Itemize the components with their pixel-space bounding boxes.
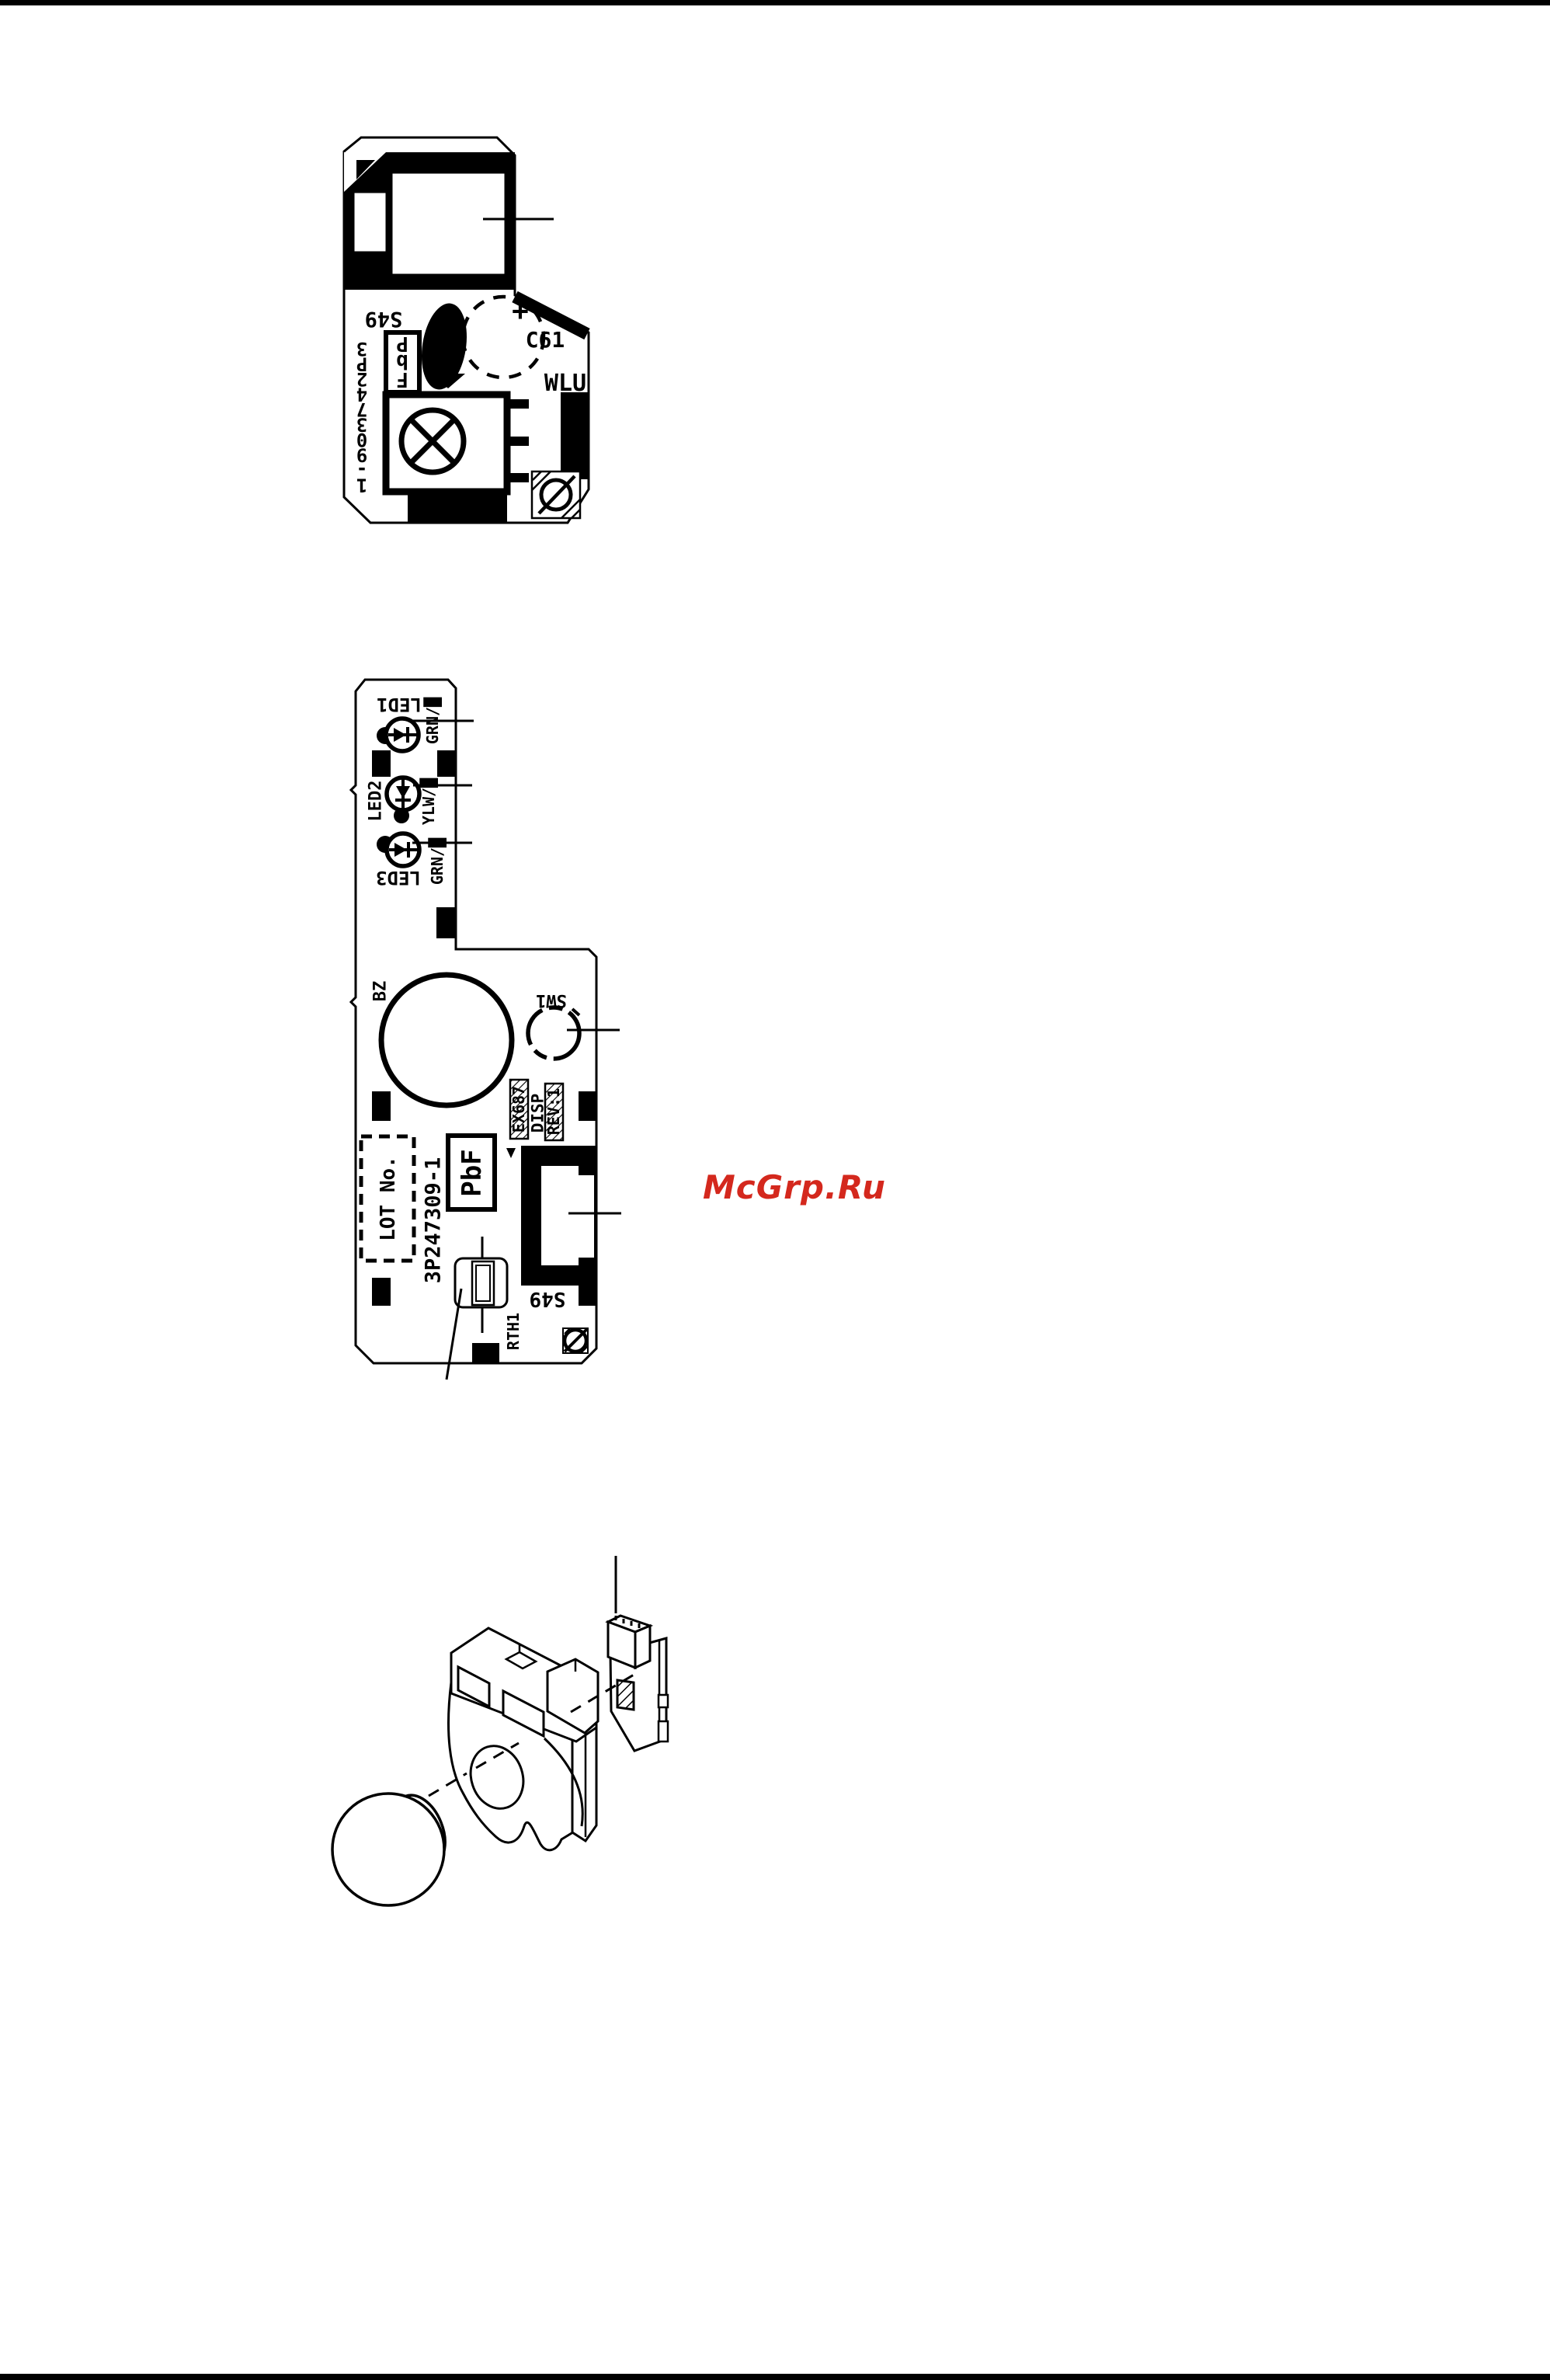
button-knob	[332, 1787, 455, 1905]
label-led3-color: GRN/█	[428, 837, 447, 885]
copper-pour-right	[561, 392, 589, 479]
label-s49: S49	[530, 1287, 566, 1310]
connector-s49	[523, 1147, 596, 1284]
top-edge-bar	[0, 0, 1550, 5]
label-pbf: PbF	[396, 332, 408, 391]
watermark: McGrp.Ru	[703, 1168, 886, 1207]
hatched-pad	[617, 1680, 634, 1710]
label-rth1: RTH1	[504, 1313, 523, 1350]
label-led2-color: YLW/█	[419, 778, 438, 825]
pcb-front-drawing: LED1 GRN/█ LED2 YLW/█ LED3 GRN/█ BZ SW1 …	[342, 666, 652, 1390]
figure-button-assembly	[326, 1544, 683, 1911]
label-ex687: EX687	[509, 1086, 528, 1133]
label-bz: BZ	[371, 981, 391, 1002]
bottom-edge-bar	[0, 2374, 1550, 2380]
switch-pcb	[608, 1616, 668, 1751]
svg-text:F: F	[396, 367, 408, 391]
label-pbf: PbF	[457, 1149, 488, 1196]
label-led1-color: GRN/█	[423, 697, 442, 744]
mounting-screw	[532, 471, 580, 518]
label-led1: LED1	[377, 694, 422, 715]
buzzer-circle	[381, 975, 512, 1105]
figure-pcb-front-view: LED1 GRN/█ LED2 YLW/█ LED3 GRN/█ BZ SW1 …	[342, 666, 652, 1390]
svg-text:1: 1	[356, 475, 367, 496]
label-rev: REV:1	[544, 1088, 563, 1135]
figure-pcb-rear-view: S49 PbF 3P247309-1 + C61 WLU	[330, 128, 621, 540]
pin-pad-1	[507, 399, 529, 409]
switch-sw1-circle	[528, 1007, 579, 1059]
pin-pad-2	[507, 437, 529, 446]
label-led3: LED3	[376, 867, 421, 889]
label-s49: S49	[365, 307, 403, 331]
label-lot-no: LOT No.	[377, 1156, 400, 1241]
label-led2: LED2	[367, 781, 386, 822]
manual-page: { "page": { "width": 1996, "height": 306…	[0, 0, 1550, 2380]
copper-pour-bottom	[408, 492, 507, 523]
pcb-rear-drawing: S49 PbF 3P247309-1 + C61 WLU	[330, 128, 621, 540]
label-plus: +	[512, 295, 529, 327]
label-wlu: WLU	[544, 370, 586, 397]
pcb-connector	[608, 1616, 650, 1668]
label-c61: C61	[526, 327, 565, 353]
label-part-number: 3P247309-1	[356, 338, 367, 496]
pin-pad-3	[507, 473, 529, 482]
label-part-number: 3P247309-1	[421, 1157, 445, 1284]
connector-s49-housing	[389, 170, 508, 277]
button-assembly-drawing	[326, 1544, 683, 1911]
knob-holder	[448, 1628, 598, 1850]
mounting-screw	[563, 1328, 588, 1353]
